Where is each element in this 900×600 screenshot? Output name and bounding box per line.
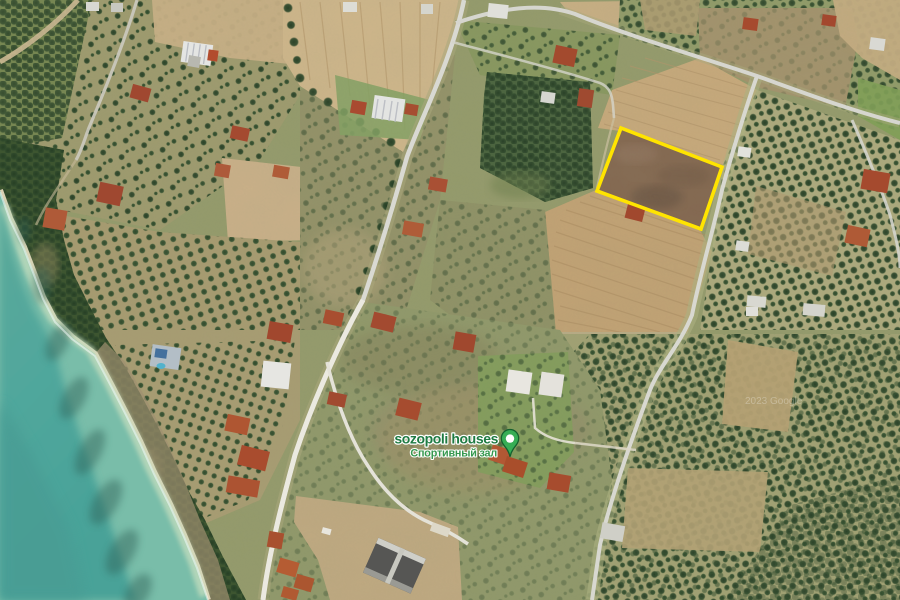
svg-text:2023 Google: 2023 Google xyxy=(745,396,803,407)
svg-text:Спортивный зал: Спортивный зал xyxy=(410,448,497,460)
svg-text:sozopoli houses: sozopoli houses xyxy=(394,431,498,447)
